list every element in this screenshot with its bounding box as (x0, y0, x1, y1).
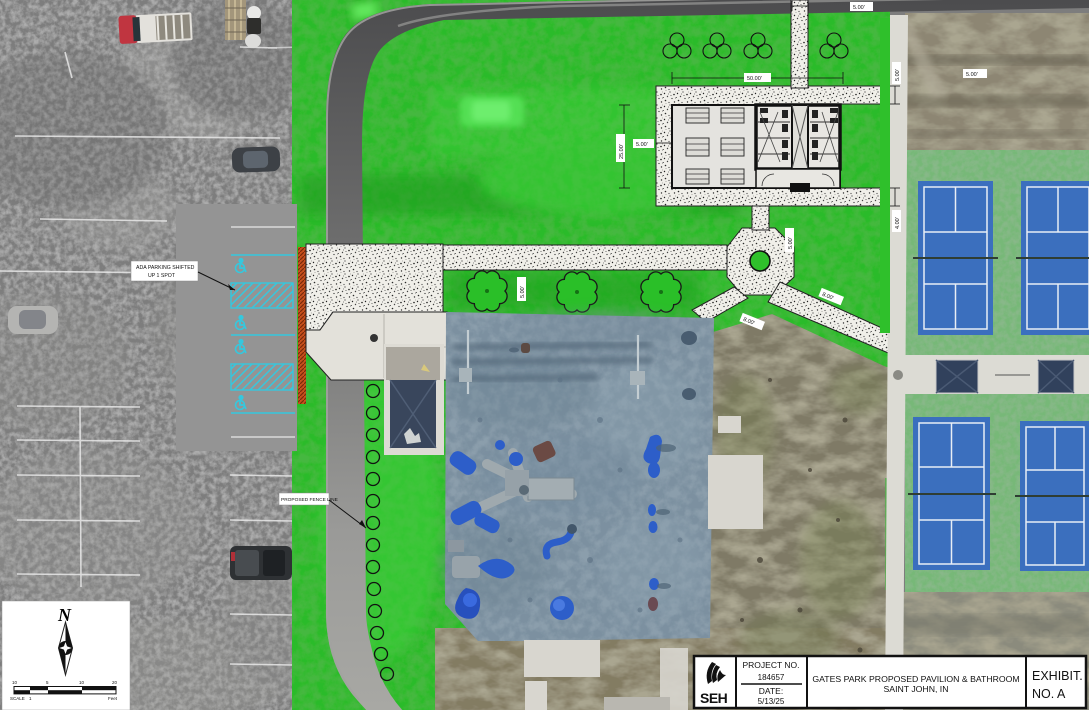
svg-text:PROJECT NO.: PROJECT NO. (743, 660, 800, 670)
svg-text:5.00': 5.00' (853, 5, 865, 11)
svg-text:4.00': 4.00' (895, 217, 901, 229)
svg-text:DATE:: DATE: (759, 686, 783, 696)
svg-text:EXHIBIT.: EXHIBIT. (1032, 669, 1083, 683)
svg-text:5.00': 5.00' (966, 72, 978, 78)
svg-text:10: 10 (12, 680, 18, 685)
svg-text:SEH: SEH (700, 690, 728, 706)
svg-text:20: 20 (112, 680, 118, 685)
svg-text:UP 1 SPOT: UP 1 SPOT (148, 273, 176, 279)
svg-text:5.00': 5.00' (520, 286, 526, 298)
svg-text:5.00': 5.00' (788, 237, 794, 249)
svg-text:NO. A: NO. A (1032, 687, 1066, 701)
svg-text:SCALE: SCALE (10, 696, 25, 701)
svg-text:184657: 184657 (758, 673, 785, 682)
svg-text:10: 10 (79, 680, 85, 685)
svg-text:5.00': 5.00' (895, 69, 901, 81)
svg-text:5/13/25: 5/13/25 (758, 697, 785, 706)
svg-text:N: N (57, 605, 72, 625)
svg-text:5.00': 5.00' (636, 142, 648, 148)
svg-text:Feet: Feet (108, 696, 118, 701)
svg-text:50.00': 50.00' (747, 76, 762, 82)
svg-text:25.00': 25.00' (619, 144, 625, 159)
svg-text:GATES PARK PROPOSED PAVILION &: GATES PARK PROPOSED PAVILION & BATHROOM (812, 674, 1019, 684)
svg-text:ADA PARKING SHIFTED: ADA PARKING SHIFTED (136, 265, 195, 271)
svg-text:SAINT JOHN, IN: SAINT JOHN, IN (883, 684, 948, 694)
